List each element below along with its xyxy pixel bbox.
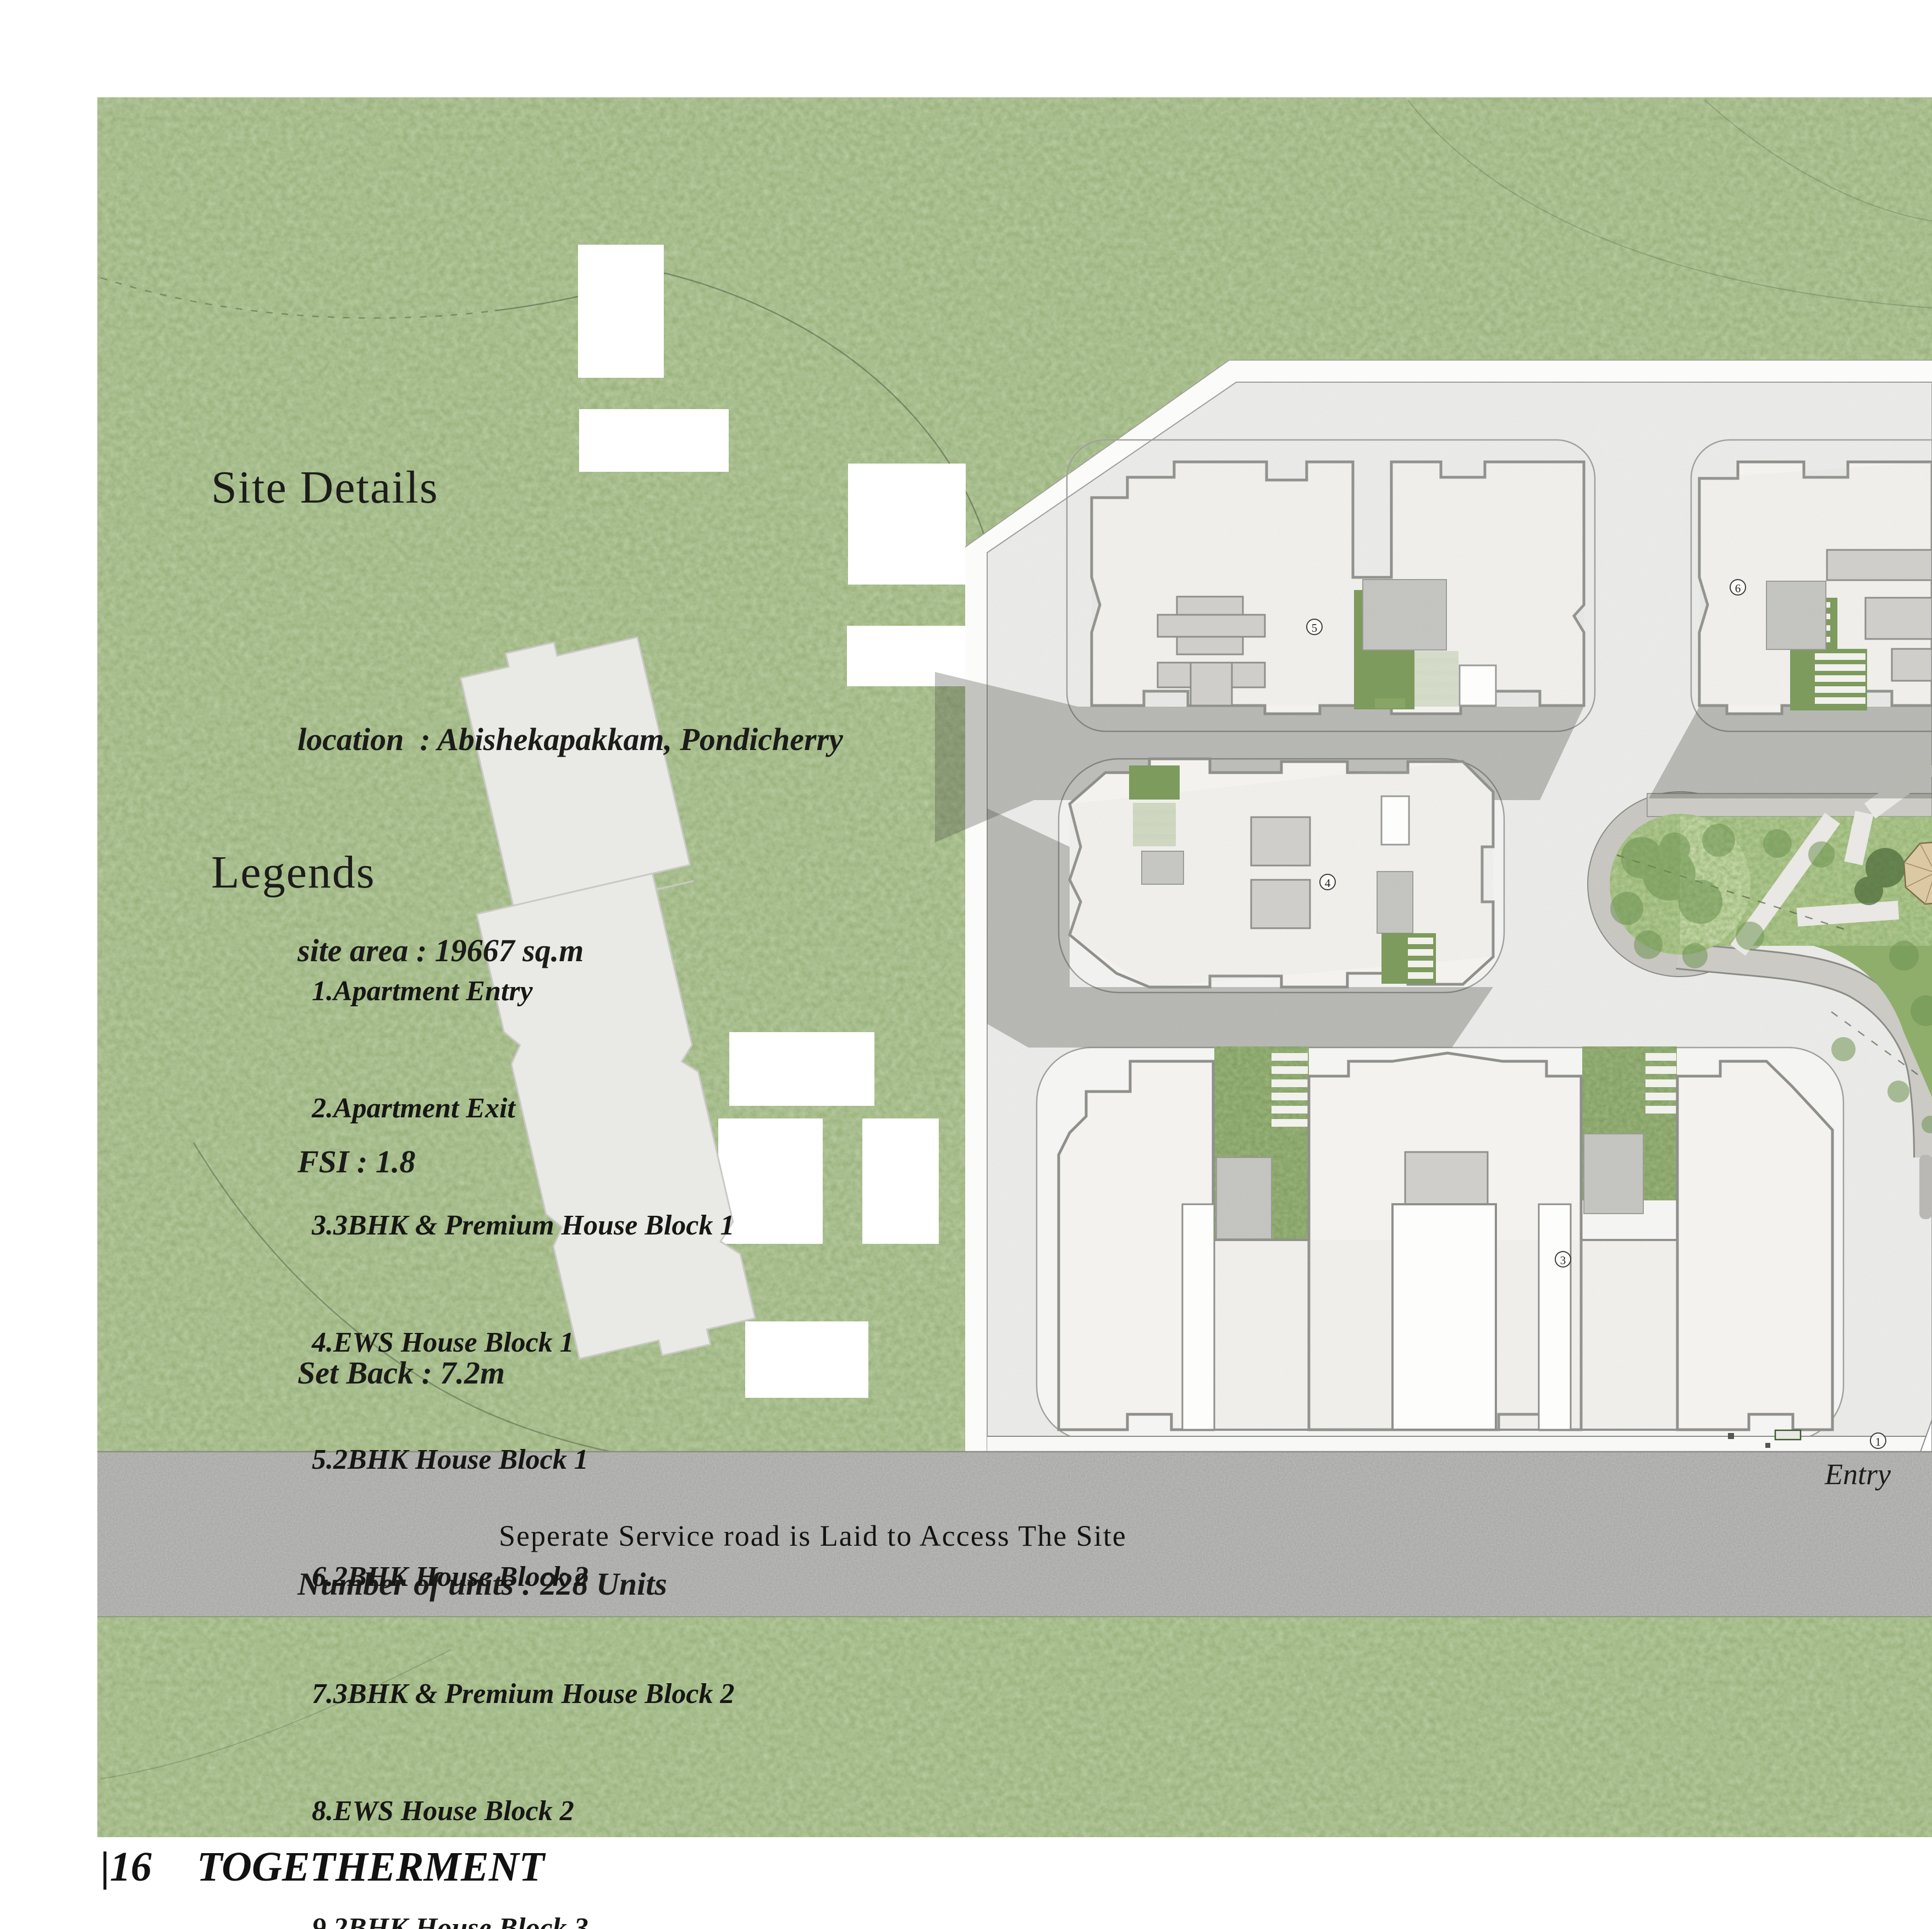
legend-item-2: 2.Apartment Exit	[312, 1089, 735, 1128]
site-plan-page: Site Details location : Abishekapakkam, …	[0, 0, 1932, 1929]
legend-item-1: 1.Apartment Entry	[312, 972, 735, 1011]
legends-list: 1.Apartment Entry 2.Apartment Exit 3.3BH…	[312, 894, 735, 1929]
marker-apartment-entry: 1	[1870, 1432, 1886, 1449]
building-block-5	[1092, 462, 1584, 714]
marker-block-4: 4	[1319, 874, 1336, 890]
legends-heading: Legends	[211, 846, 376, 899]
legend-item-6: 6.2BHK House Block 2	[312, 1557, 735, 1596]
legend-item-7: 7.3BHK & Premium House Block 2	[312, 1674, 735, 1713]
building-block-3	[1059, 1046, 1832, 1430]
site-details-heading: Site Details	[211, 461, 439, 514]
entry-label: Entry	[1825, 1457, 1891, 1491]
marker-block-5: 5	[1306, 619, 1323, 635]
legend-item-3: 3.3BHK & Premium House Block 1	[312, 1206, 735, 1245]
building-block-4	[1070, 759, 1493, 987]
site-plan-drawing	[0, 0, 1932, 1929]
block-4-courtyard-lawn-tl	[1129, 765, 1180, 800]
marker-block-3: 3	[1555, 1251, 1571, 1267]
block-3-court-slot-center	[1392, 1204, 1496, 1430]
block-5-courtyard	[1460, 665, 1496, 706]
legend-item-4: 4.EWS House Block 1	[312, 1323, 735, 1362]
block-4-courtyard	[1381, 796, 1409, 845]
footer-page-number: |16	[101, 1843, 152, 1891]
legend-item-5: 5.2BHK House Block 1	[312, 1440, 735, 1479]
legend-item-9: 9.2BHK House Block 3	[312, 1909, 735, 1929]
block-3-roof-slab	[1405, 1152, 1488, 1210]
site-detail-location: location : Abishekapakkam, Pondicherry	[298, 704, 843, 775]
service-road-label: Seperate Service road is Laid to Access …	[499, 1519, 1127, 1553]
marker-block-6: 6	[1730, 579, 1746, 596]
footer-title: TOGETHERMENT	[197, 1843, 544, 1891]
block-4-concrete-tl	[1142, 851, 1184, 884]
legend-item-8: 8.EWS House Block 2	[312, 1792, 735, 1831]
entry-bench	[1775, 1430, 1801, 1440]
block-3-court-slot-left	[1182, 1204, 1214, 1430]
block-3-court-slot-right	[1539, 1204, 1571, 1430]
